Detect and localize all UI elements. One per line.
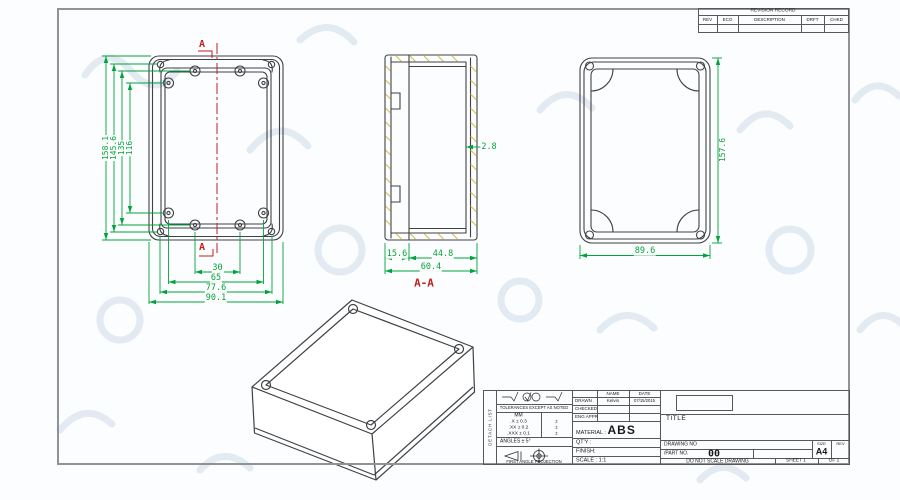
dim-44-8: 44.8 bbox=[432, 250, 454, 259]
dim-height-157-6: 157.6 bbox=[719, 137, 727, 163]
part-no-label: /PART NO. bbox=[664, 451, 688, 456]
angles-tolerance: ANGLES ± 5° bbox=[500, 439, 531, 444]
revision-table-line bbox=[698, 24, 849, 25]
cad-drawing-sheet: REVISION RECORD REV ECO DESCRIPTION DRFT… bbox=[0, 0, 900, 500]
dim-wall-2-8: 2.8 bbox=[480, 143, 497, 152]
title-block-line bbox=[572, 390, 573, 465]
title-block-line bbox=[541, 412, 542, 437]
revision-col-eco: ECO bbox=[723, 17, 733, 22]
unit-label: MM bbox=[514, 414, 522, 419]
revision-col-rev: REV bbox=[703, 17, 712, 22]
dim-width-65: 65 bbox=[210, 274, 222, 283]
material-value: ABS bbox=[607, 422, 635, 436]
dim-width-89-6: 89.6 bbox=[634, 247, 656, 256]
drawn-date: 07/15/2015 bbox=[634, 399, 655, 403]
name-header: NAME bbox=[606, 391, 619, 396]
side-note: DETACH LIST bbox=[487, 408, 492, 446]
rev-label: REV bbox=[836, 442, 844, 446]
checked-label: CHECKED bbox=[575, 407, 597, 412]
section-label-a-bottom: A bbox=[199, 243, 205, 253]
material-row: MATERIAL : ABS bbox=[576, 423, 636, 436]
eng-appr-label: ENG APPR bbox=[575, 415, 598, 420]
tol-mark-3: ± bbox=[555, 432, 558, 437]
section-view-label: A-A bbox=[414, 278, 434, 289]
scale-label: SCALE : 1:1 bbox=[576, 458, 606, 464]
title-block-line bbox=[831, 440, 832, 458]
drawn-label: DRAWN bbox=[575, 399, 592, 404]
dim-15-6: 15.6 bbox=[386, 250, 408, 259]
dim-height-116: 116 bbox=[126, 140, 134, 156]
revision-col-drft: DRFT bbox=[807, 17, 819, 22]
revision-table-line bbox=[717, 15, 718, 33]
qty-label: QT'Y : bbox=[576, 440, 591, 446]
dim-width-77-6: 77.6 bbox=[205, 284, 227, 293]
title-block-line bbox=[496, 446, 572, 447]
projection-label: FIRST ANGLE PROJECTION bbox=[506, 460, 561, 464]
tol-row-3: .XXX ± 0.1 bbox=[507, 432, 530, 437]
size-value: A4 bbox=[816, 448, 828, 457]
dim-width-30: 30 bbox=[211, 264, 223, 273]
size-label: SIZE bbox=[817, 442, 826, 446]
title-block-line bbox=[753, 449, 754, 458]
material-label: MATERIAL : bbox=[576, 429, 606, 435]
title-block-line bbox=[660, 414, 850, 415]
title-block-line bbox=[496, 412, 572, 413]
revision-table-title: REVISION RECORD bbox=[750, 10, 795, 15]
title-block-line bbox=[775, 458, 776, 465]
title-label: TITLE bbox=[666, 416, 686, 423]
title-block-line bbox=[629, 390, 630, 421]
drawn-name: Kelvin bbox=[607, 399, 619, 404]
do-not-scale-note: DO NOT SCALE DRAWING bbox=[686, 459, 749, 464]
dim-width-90-1: 90.1 bbox=[205, 294, 227, 303]
title-block-line bbox=[660, 390, 661, 465]
title-block-line bbox=[496, 390, 497, 465]
revision-table-line bbox=[801, 15, 802, 33]
revision-table-line bbox=[738, 15, 739, 33]
section-label-a-top: A bbox=[199, 40, 205, 50]
drawing-no-label: DRAWING NO bbox=[664, 442, 697, 447]
revision-table-line bbox=[824, 15, 825, 33]
revision-col-chkd: CHKD bbox=[830, 17, 843, 22]
finish-label: FINISH: bbox=[576, 449, 596, 455]
date-header: DATE bbox=[639, 391, 651, 396]
title-block-line bbox=[818, 458, 819, 465]
title-block-line bbox=[812, 440, 813, 458]
revision-col-description: DESCRIPTION bbox=[754, 17, 785, 22]
logo-box bbox=[676, 395, 733, 411]
sheet-label: SHEET 1 bbox=[786, 459, 806, 464]
dim-60-4: 60.4 bbox=[420, 263, 442, 272]
of-label: OF 1 bbox=[829, 459, 840, 464]
tolerances-header: TOLERANCES EXCEPT AS NOTED bbox=[500, 406, 569, 410]
